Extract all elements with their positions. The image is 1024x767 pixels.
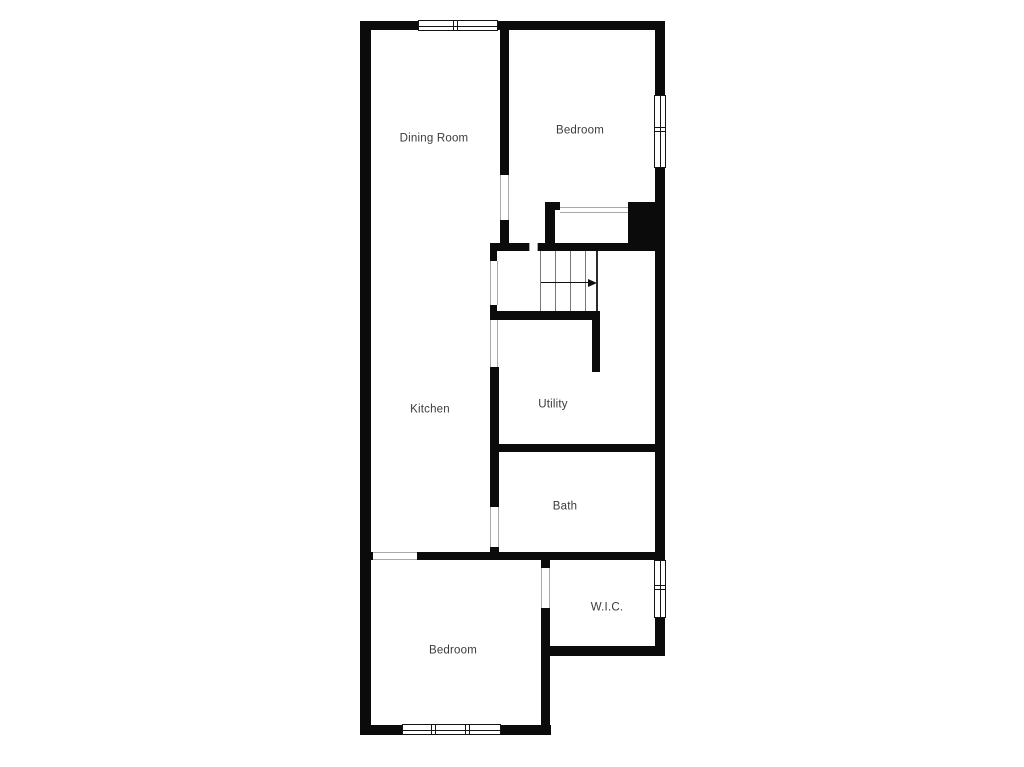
stair-arrow-head-icon: [588, 279, 597, 287]
wall-dining-bedroom-divider: [500, 30, 509, 175]
stair-tread-line: [555, 251, 556, 311]
room-label-kitchen: Kitchen: [410, 404, 450, 416]
stair-direction-arrow: [541, 282, 589, 283]
opening-kitchen-stairs-opening: [490, 261, 498, 305]
wall-bedroom-bottom-wall-stub: [545, 202, 560, 210]
window-mullion: [655, 127, 665, 128]
wall-bath-bottom-wall-right: [417, 552, 665, 560]
wall-bath-bottom-wall-left: [360, 552, 373, 560]
window-mullion: [655, 585, 665, 586]
wall-stair-bottom-wall: [490, 311, 600, 320]
opening-dining-bedroom-doorway: [500, 175, 509, 220]
window-wic-right-icon: [654, 560, 666, 618]
room-label-utility: Utility: [538, 399, 568, 411]
wall-utility-bath-divider: [490, 444, 665, 452]
window-mullion: [457, 21, 458, 30]
wall-bedroom-wic-divider: [541, 608, 550, 735]
wall-kitchen-utility-divider: [490, 367, 499, 507]
wall-outer-top-wall-right: [498, 21, 665, 30]
wall-outer-right-wall-upper: [655, 21, 665, 95]
wall-wic-bottom-wall: [550, 646, 665, 656]
opening-stairs-top-opening: [529, 243, 538, 251]
room-label-wic: W.I.C.: [591, 602, 624, 614]
window-mullion: [465, 725, 466, 734]
floorplan: Dining RoomBedroomKitchenUtilityBathW.I.…: [0, 0, 1024, 767]
room-label-bedroom-bottom: Bedroom: [429, 645, 477, 657]
room-label-bath: Bath: [553, 501, 577, 513]
wall-bedroom-wic-divider-stub: [541, 560, 550, 568]
window-mullion: [431, 725, 432, 734]
wall-stairwell-top-wall-right: [538, 243, 665, 251]
wall-stair-utility-divider: [592, 311, 600, 372]
opening-bedroom-doorway: [373, 552, 417, 560]
window-center-rail: [419, 26, 497, 27]
window-bedroom-right-icon: [654, 95, 666, 168]
stair-tread-line: [570, 251, 571, 311]
wall-outer-bottom-wall-left: [360, 725, 402, 735]
window-mullion: [435, 725, 436, 734]
stair-tread-line: [540, 251, 541, 311]
stair-tread-line: [585, 251, 586, 311]
opening-bath-doorway: [490, 507, 499, 547]
opening-kitchen-utility-opening: [490, 320, 498, 367]
window-mullion: [469, 725, 470, 734]
wall-stairwell-left-nub-upper: [490, 243, 497, 261]
wall-outer-left-wall: [360, 21, 371, 735]
room-label-bedroom-top: Bedroom: [556, 125, 604, 137]
window-dining-top-icon: [418, 20, 498, 31]
window-bedroom-bottom-icon: [402, 724, 501, 735]
window-mullion: [655, 131, 665, 132]
opening-wic-doorway: [541, 568, 550, 608]
window-mullion: [453, 21, 454, 30]
window-mullion: [655, 589, 665, 590]
room-label-dining-room: Dining Room: [400, 133, 469, 145]
window-center-rail: [403, 730, 500, 731]
opening-closet-doorway: [560, 207, 628, 213]
